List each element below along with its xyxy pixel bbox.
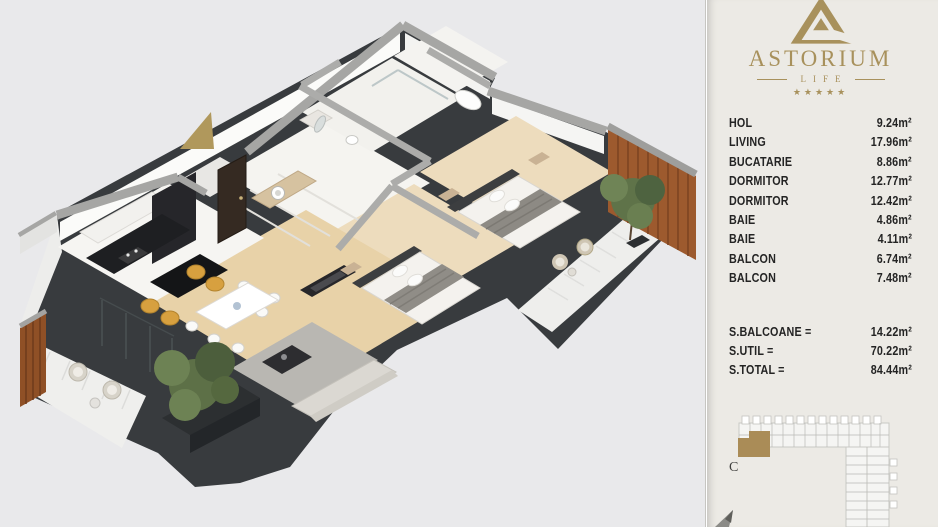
apartment-listing-visual: ASTORIUM LIFE ★★★★★ HOL9.24m² LIVING17.9…	[0, 0, 938, 527]
brand-subtitle: LIFE	[794, 74, 848, 84]
floorplan-3d-render	[0, 0, 706, 527]
brand-subtitle-row: LIFE	[729, 74, 912, 84]
wood-wall-left	[20, 311, 46, 407]
room-row: BUCATARIE8.86m²	[729, 153, 912, 172]
room-row: BALCON7.48m²	[729, 269, 912, 288]
brand-logo: ASTORIUM LIFE ★★★★★	[729, 0, 912, 98]
site-plan-svg: C	[707, 411, 938, 527]
brand-stars: ★★★★★	[729, 87, 912, 98]
rule-left	[757, 79, 787, 80]
floorplan-svg	[0, 0, 706, 527]
entrance-door	[218, 155, 246, 243]
building-site-plan: C	[707, 411, 938, 527]
room-row: BAIE4.86m²	[729, 211, 912, 230]
entrance-marker-triangle-icon	[180, 112, 214, 149]
building-wing-vertical	[846, 447, 897, 527]
room-area-list: HOL9.24m² LIVING17.96m² BUCATARIE8.86m² …	[729, 114, 912, 289]
rule-right	[855, 79, 885, 80]
door-handle	[239, 196, 243, 200]
room-row: DORMITOR12.42m²	[729, 192, 912, 211]
total-row: S.UTIL =70.22m²	[729, 342, 912, 361]
info-panel: ASTORIUM LIFE ★★★★★ HOL9.24m² LIVING17.9…	[706, 0, 938, 527]
room-row: BALCON6.74m²	[729, 250, 912, 269]
astorium-logo-icon	[790, 0, 852, 46]
room-row: DORMITOR12.77m²	[729, 172, 912, 191]
brand-name: ASTORIUM	[729, 46, 912, 72]
room-row: HOL9.24m²	[729, 114, 912, 133]
room-row: LIVING17.96m²	[729, 133, 912, 152]
compass-icon	[715, 510, 733, 527]
room-row: BAIE4.11m²	[729, 230, 912, 249]
total-row: S.BALCOANE =14.22m²	[729, 323, 912, 342]
total-row: S.TOTAL =84.44m²	[729, 361, 912, 380]
block-label: C	[729, 460, 738, 475]
area-totals: S.BALCOANE =14.22m² S.UTIL =70.22m² S.TO…	[729, 323, 912, 381]
